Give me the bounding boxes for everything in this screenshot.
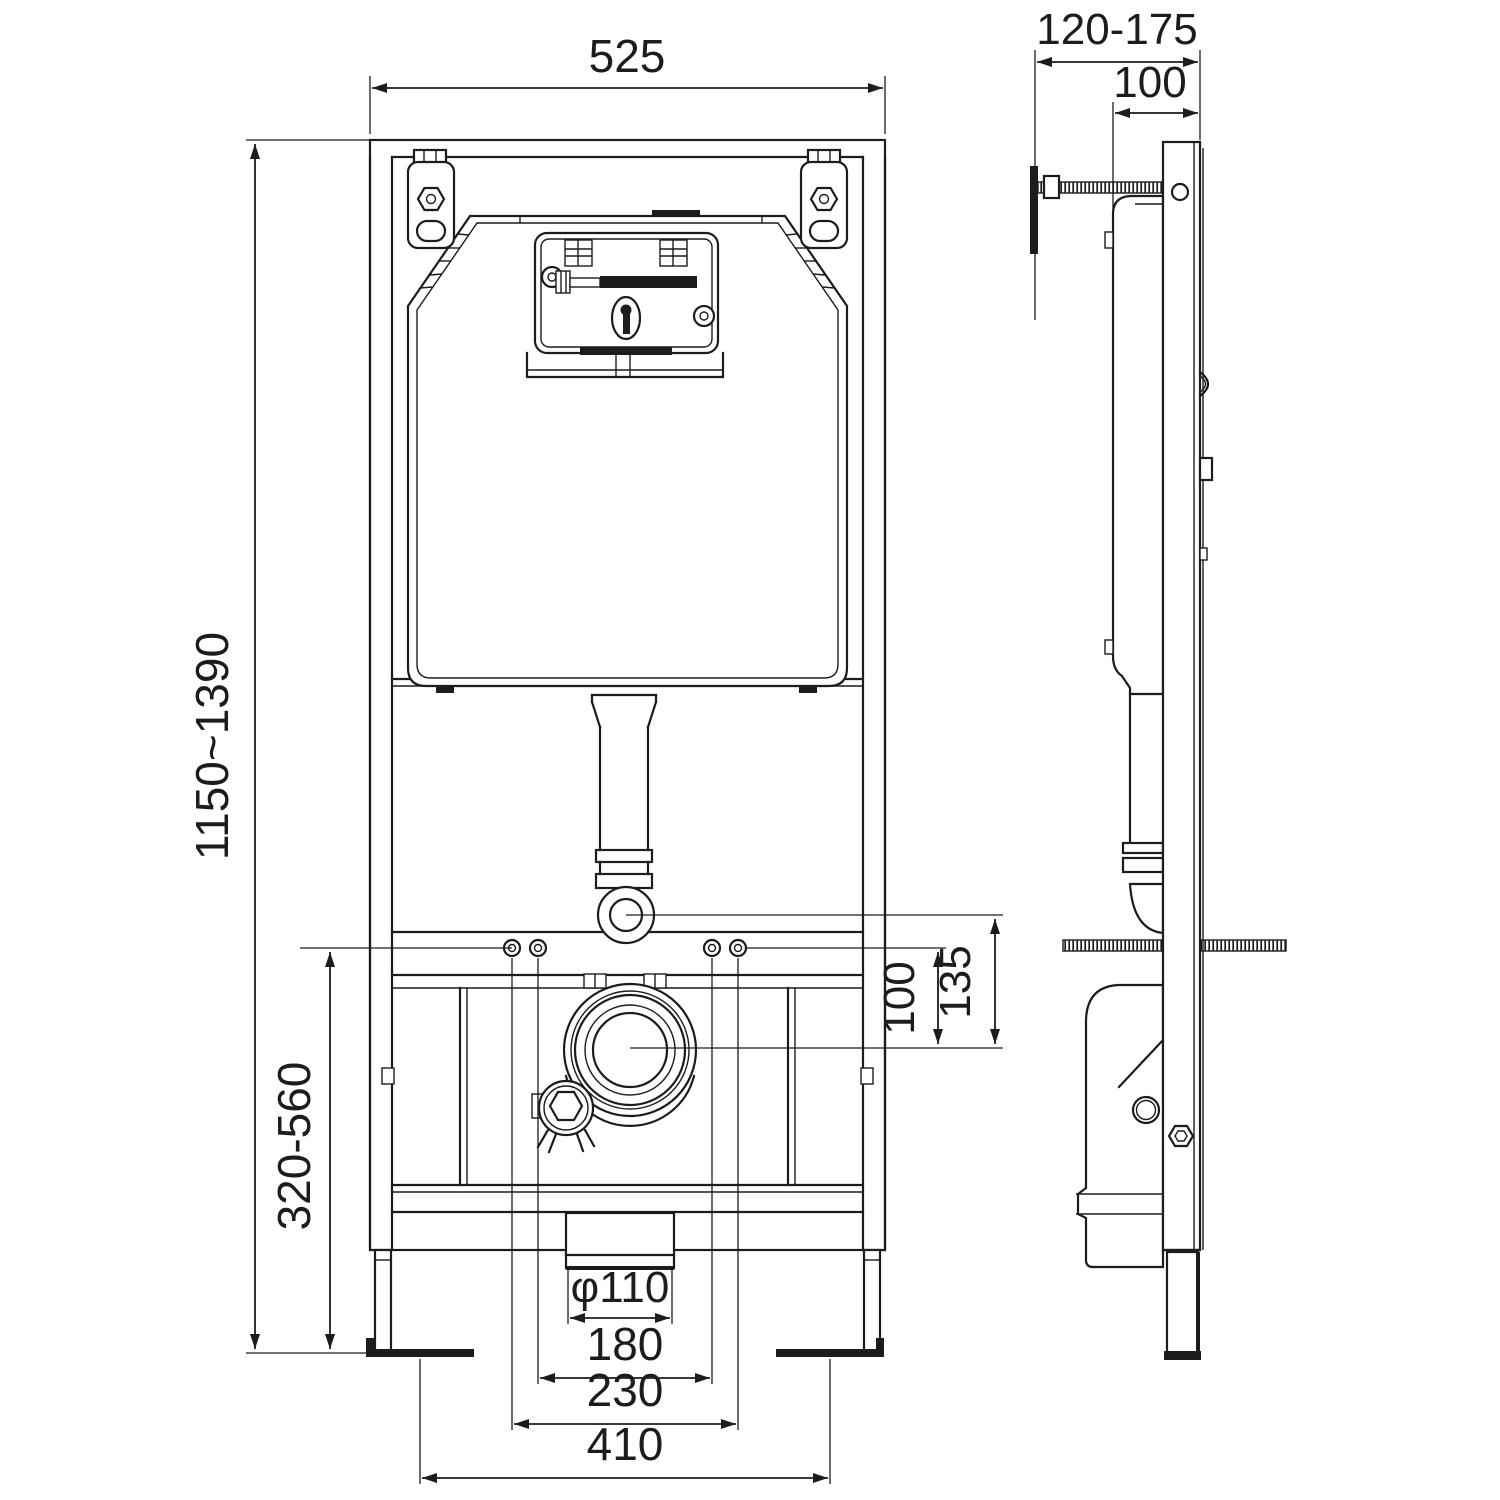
panel-bolt-right bbox=[694, 306, 714, 326]
hex-bolt-icon bbox=[1169, 1126, 1193, 1146]
svg-text:100: 100 bbox=[1113, 58, 1186, 107]
svg-text:φ110: φ110 bbox=[571, 1263, 670, 1312]
hex-nut-icon bbox=[418, 188, 444, 210]
panel-clip-left bbox=[565, 240, 592, 266]
rail-foot bbox=[1164, 1252, 1201, 1360]
d-ring-icon bbox=[1200, 372, 1208, 396]
front-view bbox=[366, 140, 885, 1357]
pipe-coupling-2 bbox=[596, 874, 652, 888]
technical-drawing: 525 1150~1390 320-560 100 135 bbox=[0, 0, 1500, 1500]
pipe-coupling-1 bbox=[596, 850, 652, 862]
anchor-nut bbox=[1044, 176, 1059, 198]
wall-bracket-right bbox=[801, 150, 847, 248]
wall-bracket-left bbox=[408, 150, 454, 248]
svg-text:410: 410 bbox=[587, 1418, 664, 1470]
svg-text:525: 525 bbox=[589, 30, 666, 82]
hex-bolt-icon bbox=[550, 1092, 582, 1120]
side-lug-right bbox=[861, 1068, 873, 1084]
keyhole bbox=[612, 297, 640, 339]
side-view bbox=[1030, 142, 1286, 1360]
rail-tab bbox=[1200, 458, 1212, 480]
svg-text:135: 135 bbox=[931, 945, 980, 1018]
cistern-profile bbox=[1105, 196, 1163, 694]
flush-pipe-profile bbox=[1123, 694, 1163, 933]
svg-text:180: 180 bbox=[587, 1318, 664, 1370]
svg-text:1150~1390: 1150~1390 bbox=[186, 632, 238, 860]
hex-nut-icon bbox=[811, 188, 837, 210]
frame-rail-profile bbox=[1163, 142, 1212, 1250]
svg-text:120-175: 120-175 bbox=[1036, 5, 1197, 54]
svg-text:100: 100 bbox=[875, 961, 924, 1034]
dim-front-width: 525 bbox=[370, 30, 885, 134]
access-panel bbox=[535, 233, 718, 355]
top-notch bbox=[652, 210, 700, 217]
panel-clip-right bbox=[660, 240, 687, 266]
drawing-sheet: 525 1150~1390 320-560 100 135 bbox=[0, 0, 1500, 1500]
slot bbox=[417, 221, 445, 241]
svg-text:320-560: 320-560 bbox=[268, 1062, 320, 1231]
dim-outlet-diameter: φ110 bbox=[568, 1263, 672, 1324]
rail-hole bbox=[1172, 184, 1188, 200]
rail-tab-small bbox=[1200, 548, 1207, 560]
svg-text:230: 230 bbox=[587, 1364, 664, 1416]
drain-elbow-profile bbox=[1076, 985, 1163, 1267]
outlet-box bbox=[566, 1213, 674, 1268]
side-lug-left bbox=[382, 1068, 394, 1084]
slot bbox=[810, 221, 838, 241]
